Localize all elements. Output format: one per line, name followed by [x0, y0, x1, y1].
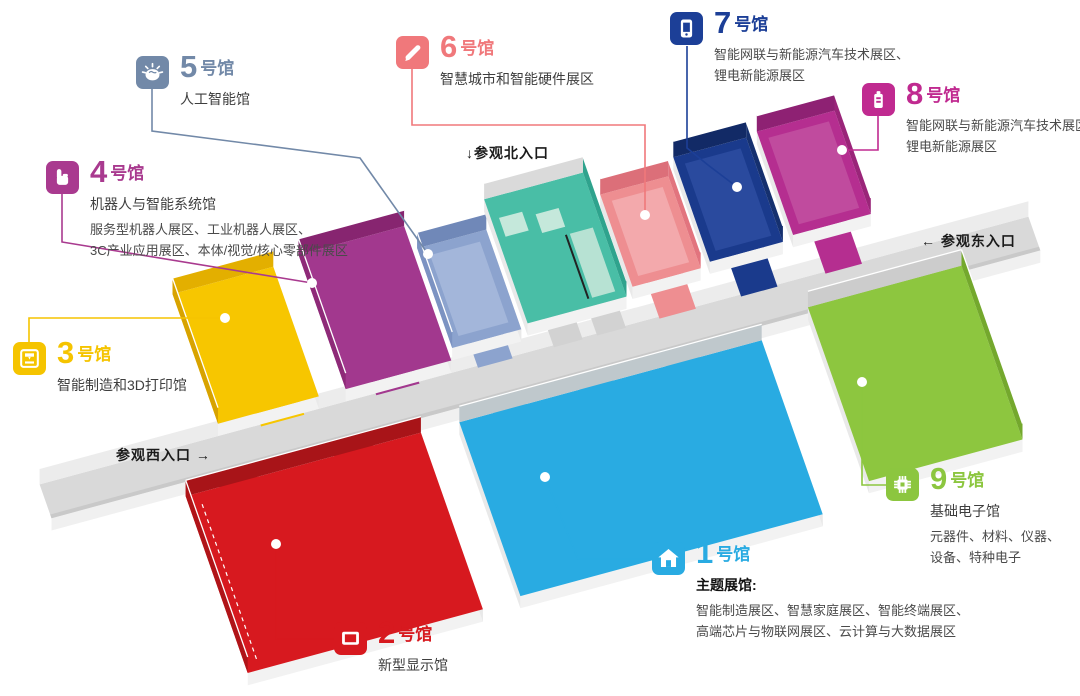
hall-5-label: 5号馆 人工智能馆	[136, 56, 250, 108]
hall-1-marker-dot	[540, 472, 550, 482]
hall-8-desc: 智能网联与新能源汽车技术展区 锂电新能源展区	[906, 115, 1080, 157]
hall-8-marker-dot	[837, 145, 847, 155]
printer-3d-icon	[13, 342, 46, 375]
hall-3-title: 3号馆	[57, 337, 187, 368]
battery-icon	[862, 83, 895, 116]
hall-7-marker-dot	[732, 182, 742, 192]
hall-5-marker-dot	[423, 249, 433, 259]
east-entrance-label: ← 参观东入口	[921, 231, 1016, 251]
hall-5-title: 5号馆	[180, 51, 250, 82]
hall-2-title: 2号馆	[378, 617, 448, 648]
hall-9-title: 9号馆	[930, 463, 1060, 494]
display-icon	[334, 622, 367, 655]
hall-2-marker-dot	[271, 539, 281, 549]
hall-6-subtitle: 智慧城市和智能硬件展区	[440, 70, 594, 88]
hall-4-label: 4号馆 机器人与智能系统馆 服务型机器人展区、工业机器人展区、 3C产业应用展区…	[46, 161, 348, 261]
west-entrance-label: 参观西入口 →	[116, 445, 211, 465]
hall-1-desc: 智能制造展区、智慧家庭展区、智能终端展区、 高端芯片与物联网展区、云计算与大数据…	[696, 600, 969, 642]
hall-7-desc: 智能网联与新能源汽车技术展区、 锂电新能源展区	[714, 44, 909, 86]
chip-icon	[886, 468, 919, 501]
hall-4-desc: 服务型机器人展区、工业机器人展区、 3C产业应用展区、本体/视觉/核心零部件展区	[90, 219, 348, 261]
hall-3-subtitle: 智能制造和3D打印馆	[57, 376, 187, 394]
smart-device-icon	[670, 12, 703, 45]
hall-2-label: 2号馆 新型显示馆	[334, 622, 448, 674]
hall-9-subtitle: 基础电子馆	[930, 502, 1060, 520]
hall-2-subtitle: 新型显示馆	[378, 656, 448, 674]
hall-6-title: 6号馆	[440, 31, 594, 62]
hall-6-label: 6号馆 智慧城市和智能硬件展区	[396, 36, 594, 88]
expo-floor-map: { "halls": [ {"num":"1","suffix":"号馆","c…	[0, 0, 1080, 696]
hall-8-title: 8号馆	[906, 78, 1080, 109]
hall-6-marker-dot	[640, 210, 650, 220]
house-icon	[652, 542, 685, 575]
pen-icon	[396, 36, 429, 69]
hall-7-label: 7号馆 智能网联与新能源汽车技术展区、 锂电新能源展区	[670, 12, 909, 86]
hand-icon	[46, 161, 79, 194]
hall-9-marker-dot	[857, 377, 867, 387]
brain-icon	[136, 56, 169, 89]
hall-9-label: 9号馆 基础电子馆 元器件、材料、仪器、 设备、特种电子	[886, 468, 1060, 568]
hall-1-subtitle: 主题展馆:	[696, 576, 969, 594]
hall-9-desc: 元器件、材料、仪器、 设备、特种电子	[930, 526, 1060, 568]
hall-5-subtitle: 人工智能馆	[180, 90, 250, 108]
hall-8-label: 8号馆 智能网联与新能源汽车技术展区 锂电新能源展区	[862, 83, 1080, 157]
north-entrance-label: ↓参观北入口	[466, 143, 549, 163]
hall-7-title: 7号馆	[714, 7, 909, 38]
hall-3-marker-dot	[220, 313, 230, 323]
hall-4-subtitle: 机器人与智能系统馆	[90, 195, 348, 213]
hall-4-title: 4号馆	[90, 156, 348, 187]
hall-3-label: 3号馆 智能制造和3D打印馆	[13, 342, 187, 394]
hall-4-marker-dot	[307, 278, 317, 288]
